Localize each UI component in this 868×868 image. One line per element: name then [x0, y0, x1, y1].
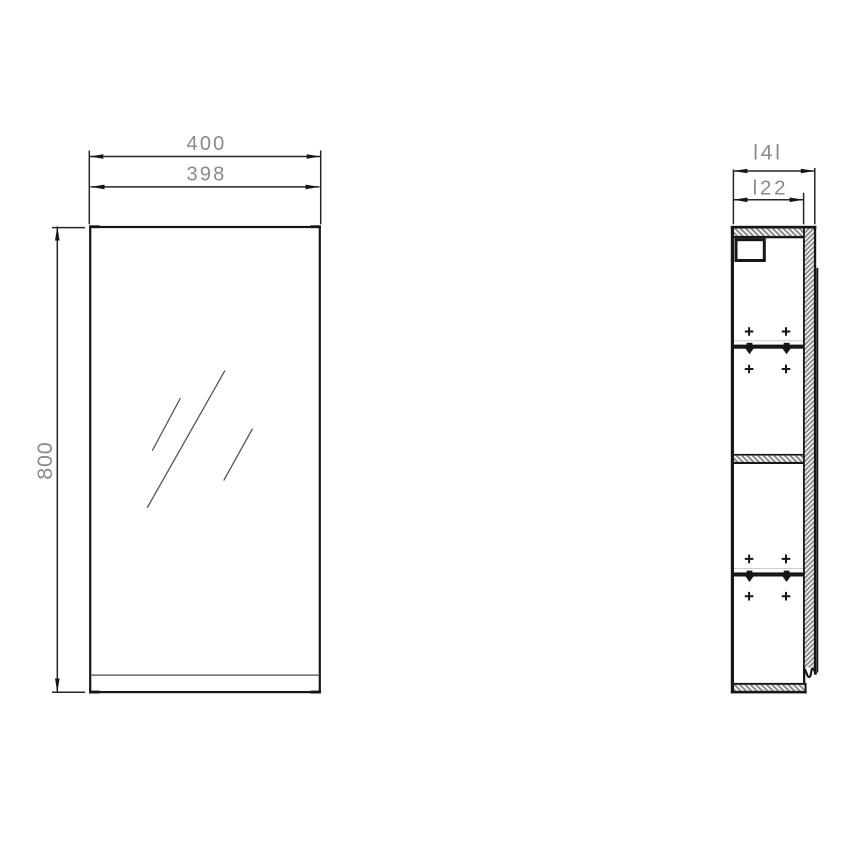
svg-text:l4l: l4l	[753, 142, 782, 165]
svg-text:398: 398	[187, 164, 227, 186]
svg-text:400: 400	[187, 133, 227, 155]
svg-text:800: 800	[33, 441, 57, 479]
svg-text:l22: l22	[753, 177, 789, 200]
